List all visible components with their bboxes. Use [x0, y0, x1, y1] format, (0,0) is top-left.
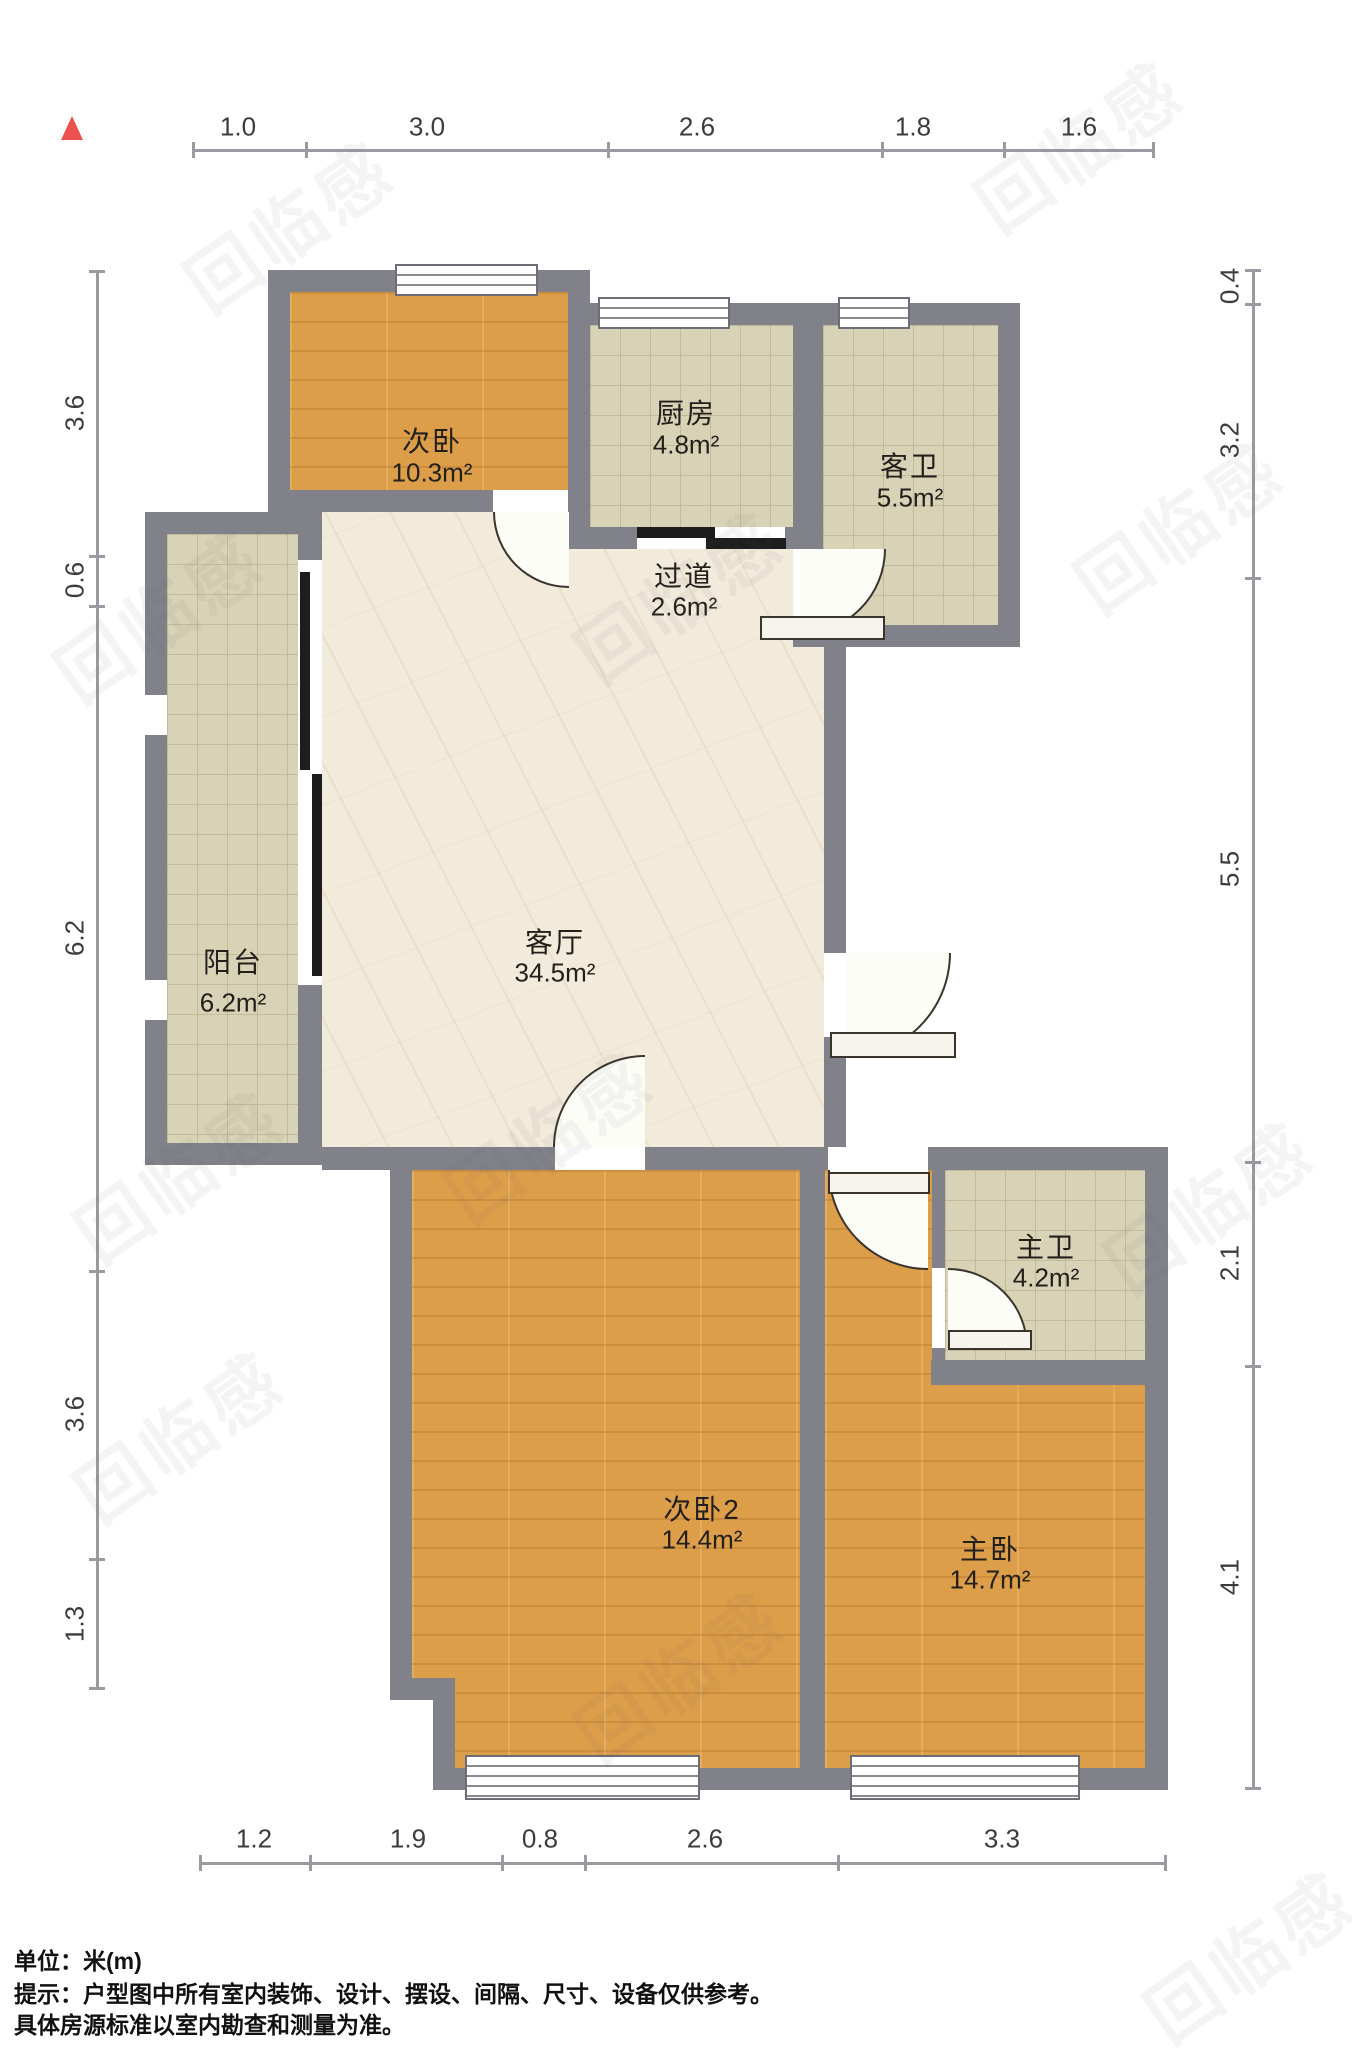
watermark: 回临感 [951, 32, 1203, 252]
balcony-window [145, 695, 167, 735]
dim-tick [1245, 1787, 1261, 1790]
dim-tick [89, 270, 105, 273]
room-label-hallway: 过道 [654, 555, 714, 595]
room-label-balcony: 阳台 [203, 941, 263, 981]
dim-tick [309, 1855, 312, 1871]
dim-line-top [192, 149, 1155, 152]
north-arrow-icon [61, 116, 83, 140]
footer-unit: 单位：米(m) [14, 1942, 142, 1976]
door-opening-entry [824, 953, 846, 1037]
dim-label-bottom: 0.8 [522, 1824, 558, 1855]
wall [824, 647, 846, 1147]
wall [433, 1678, 455, 1790]
door-opening-master-bathroom [932, 1268, 945, 1348]
dim-tick [1245, 577, 1261, 580]
room-area-kitchen: 4.8m² [653, 430, 719, 461]
room-area-hallway: 2.6m² [651, 592, 717, 623]
wall [998, 303, 1020, 647]
wall [1145, 1147, 1168, 1790]
dim-label-bottom: 1.2 [236, 1824, 272, 1855]
dim-tick [607, 142, 610, 158]
watermark: 回临感 [1121, 1842, 1352, 2048]
watermark: 回临感 [1051, 412, 1303, 632]
dim-tick [1164, 1855, 1167, 1871]
dim-tick [89, 1270, 105, 1273]
dim-label-right: 5.5 [1215, 851, 1246, 887]
dim-label-left: 1.3 [60, 1606, 91, 1642]
dim-label-left: 6.2 [60, 920, 91, 956]
sliding-door-balcony [300, 572, 310, 770]
dim-label-right: 3.2 [1215, 422, 1246, 458]
room-area-master-bathroom: 4.2m² [1013, 1263, 1079, 1294]
room-area-bedroom2: 10.3m² [392, 458, 473, 489]
dim-tick [89, 605, 105, 608]
sliding-door-kitchen [706, 538, 786, 549]
door-leaf-entry [830, 1032, 956, 1058]
dim-label-right: 4.1 [1215, 1559, 1246, 1595]
room-label-master-bathroom: 主卫 [1016, 1226, 1076, 1266]
room-label-master-bedroom: 主卧 [960, 1528, 1020, 1568]
dim-label-top: 2.6 [679, 112, 715, 143]
dim-tick [1152, 142, 1155, 158]
wall [390, 1147, 412, 1700]
dim-label-top: 1.8 [895, 112, 931, 143]
dim-label-left: 3.6 [60, 1396, 91, 1432]
footer-notice1: 提示：户型图中所有室内装饰、设计、摆设、间隔、尺寸、设备仅供参考。 [14, 1975, 773, 2009]
door-leaf-guest-bathroom [760, 616, 885, 640]
room-label-bedroom2: 次卧 [402, 420, 462, 460]
room-area-guest-bathroom: 5.5m² [877, 483, 943, 514]
door-leaf-master-bathroom [948, 1330, 1032, 1350]
watermark: 回临感 [51, 1322, 303, 1542]
footer-notice2: 具体房源标准以室内勘查和测量为准。 [14, 2006, 405, 2040]
dim-label-bottom: 2.6 [687, 1824, 723, 1855]
dim-label-bottom: 1.9 [390, 1824, 426, 1855]
dim-label-top: 3.0 [409, 112, 445, 143]
wall [931, 1360, 1168, 1385]
wall [145, 1143, 322, 1165]
dim-label-right: 2.1 [1215, 1245, 1246, 1281]
dim-label-right: 0.4 [1215, 268, 1246, 304]
room-label-bedroom3: 次卧2 [663, 1488, 741, 1528]
door-opening-bedroom2 [493, 490, 568, 512]
window-master-bedroom [850, 1755, 1080, 1800]
wall [800, 1147, 825, 1790]
dim-tick [1245, 1365, 1261, 1368]
room-label-kitchen: 厨房 [656, 392, 716, 432]
window-bedroom2 [395, 264, 538, 296]
dim-tick [881, 142, 884, 158]
dim-tick [1245, 303, 1261, 306]
window-kitchen [598, 297, 730, 329]
room-area-master-bedroom: 14.7m² [950, 1565, 1031, 1596]
dim-tick [584, 1855, 587, 1871]
dim-label-top: 1.6 [1061, 112, 1097, 143]
dim-tick [501, 1855, 504, 1871]
floor-bedroom3 [412, 1170, 800, 1768]
dim-label-left: 0.6 [60, 562, 91, 598]
dim-label-top: 1.0 [220, 112, 256, 143]
dim-tick [89, 1687, 105, 1690]
window-guest-bathroom [838, 297, 910, 329]
wall [145, 512, 167, 1165]
door-opening-master-bedroom [828, 1147, 928, 1170]
dim-tick [89, 555, 105, 558]
dim-tick [1245, 269, 1261, 272]
sliding-door-balcony [312, 774, 322, 976]
wall [268, 270, 290, 512]
floorplan-canvas: 次卧 10.3m² 厨房 4.8m² 客卫 5.5m² 过道 2.6m² 客厅 … [0, 0, 1352, 2048]
dim-line-bottom [199, 1862, 1167, 1865]
dim-label-left: 3.6 [60, 395, 91, 431]
dim-line-right [1252, 269, 1255, 1790]
door-opening-bedroom3 [555, 1147, 645, 1170]
dim-tick [89, 1558, 105, 1561]
room-area-bedroom3: 14.4m² [662, 1525, 743, 1556]
dim-tick [1003, 142, 1006, 158]
dim-tick [305, 142, 308, 158]
plan-notch [390, 1700, 433, 1790]
room-label-guest-bathroom: 客卫 [880, 445, 940, 485]
dim-label-bottom: 3.3 [984, 1824, 1020, 1855]
door-leaf-master-bedroom [828, 1172, 930, 1194]
floor-living-room [322, 512, 824, 1147]
room-area-balcony: 6.2m² [200, 988, 266, 1019]
wall [145, 512, 322, 534]
dim-tick [199, 1855, 202, 1871]
dim-tick [192, 142, 195, 158]
dim-tick [837, 1855, 840, 1871]
room-label-living-room: 客厅 [525, 921, 585, 961]
dim-tick [1245, 1161, 1261, 1164]
room-area-living-room: 34.5m² [515, 958, 596, 989]
balcony-window [145, 980, 167, 1020]
window-bedroom3 [465, 1755, 700, 1800]
dim-line-left [96, 270, 99, 1690]
sliding-door-kitchen [637, 527, 715, 538]
floor-balcony [167, 534, 298, 1143]
